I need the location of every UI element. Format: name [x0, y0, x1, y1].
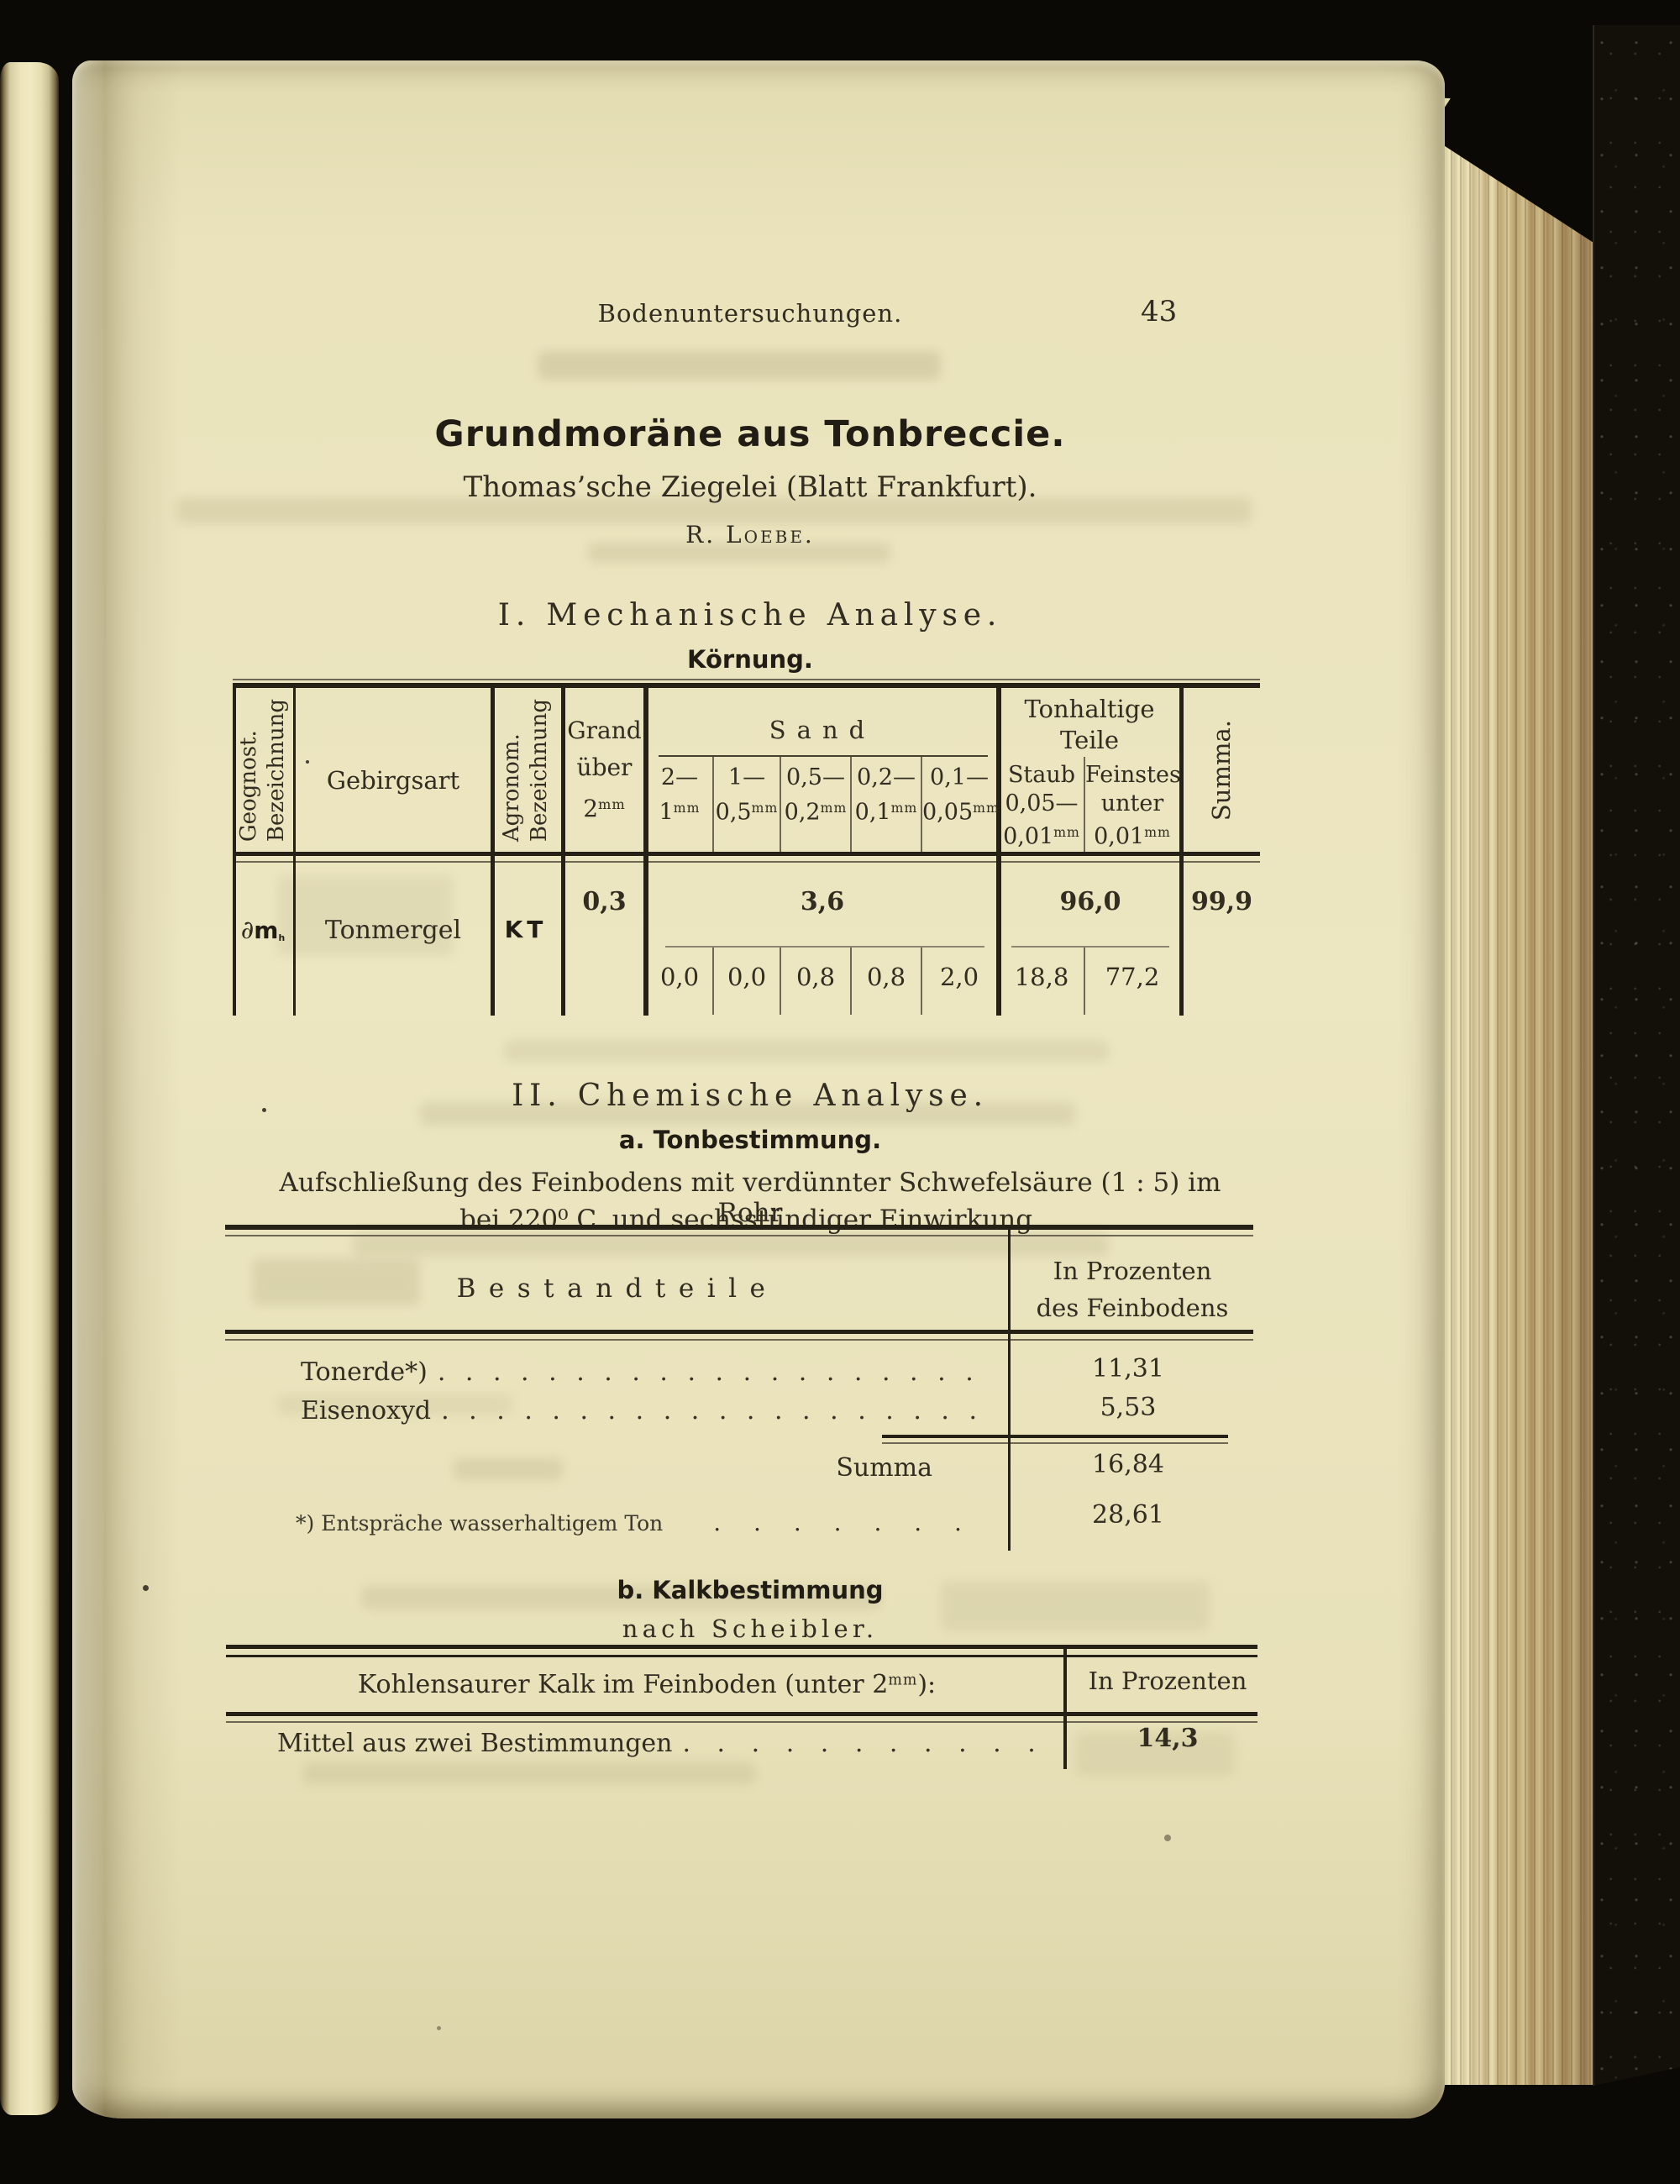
chem-row-tonerde-value: 11,31 [1011, 1354, 1246, 1383]
sand-range-bottom: 0,5mm [714, 793, 780, 828]
bleedthrough-ghost [538, 351, 941, 380]
table2-header-rule [225, 1330, 1253, 1334]
kalk-header-right: In Prozenten [1067, 1667, 1268, 1695]
geognost-symbol: ∂mh [234, 916, 291, 945]
agronom-line1: Agronom. [498, 699, 526, 842]
facing-page-edge [0, 62, 59, 2115]
table1-vline [293, 688, 296, 1016]
page-title: Grundmoräne aus Tonbreccie. [246, 413, 1254, 455]
sand-subcol-1: 2— 1mm [647, 763, 712, 828]
sand-range-unit: mm [821, 800, 848, 816]
column-header-geognost: Geognost. Bezeichnung [234, 690, 291, 850]
bleedthrough-ghost [454, 1458, 563, 1480]
value-sand-1: 0,0 [647, 963, 712, 991]
sand-range-bottom: 0,1mm [852, 793, 921, 828]
page-subtitle: Thomas’sche Ziegelei (Blatt Frankfurt). [246, 470, 1254, 504]
table2-summa-rule [882, 1435, 1228, 1438]
table1-top-rule-thin [233, 679, 1260, 680]
sand-range-value: 0,5 [716, 800, 752, 826]
value-sand-total: 3,6 [648, 887, 996, 916]
sand-range-top: 0,2— [852, 763, 921, 793]
value-ton-total: 96,0 [1001, 887, 1179, 916]
chem-header-left: Bestandteile [227, 1273, 1008, 1304]
bleedthrough-ghost [353, 1233, 1109, 1257]
sand-subcol-5: 0,1— 0,05mm [922, 763, 996, 828]
sand-range-top: 0,5— [781, 763, 850, 793]
sand-range-unit: mm [674, 800, 701, 816]
feinstes-unit: mm [1144, 824, 1171, 840]
table3-header-rule-thin [226, 1721, 1257, 1723]
geo-symbol-d: ∂ [241, 916, 255, 945]
section-1-subheading: Körnung. [246, 645, 1254, 674]
value-agronom: KT [492, 916, 559, 943]
chem-row-tonerde: Tonerde*) . . . . . . . . . . . . . . . … [301, 1357, 981, 1387]
dot-leader: . . . . . . . . . . . . . . . . . . . . … [431, 1396, 981, 1425]
table3-top-rule [226, 1645, 1257, 1649]
chem-header-right-line2: des Feinbodens [1011, 1294, 1254, 1322]
sand-range-top: 2— [647, 763, 712, 793]
chem-row-eisenoxyd: Eisenoxyd . . . . . . . . . . . . . . . … [301, 1396, 981, 1425]
sand-range-value: 0,2 [785, 800, 821, 826]
feinstes-line1: Feinstes [1085, 761, 1179, 790]
sand-underline [659, 755, 988, 757]
geo-symbol-sub: h [278, 932, 285, 943]
grand-unit: mm [598, 796, 626, 812]
sand-subcol-3: 0,5— 0,2mm [781, 763, 850, 828]
page-stack-seams [1441, 91, 1599, 2085]
feinstes-line3: 0,01mm [1085, 818, 1179, 852]
column-header-staub: Staub 0,05— 0,01mm [1000, 761, 1084, 852]
chem-row-eisenoxyd-value: 5,53 [1011, 1393, 1246, 1422]
geognost-line1: Geognost. [235, 699, 263, 842]
paper-speck [306, 760, 309, 764]
dot-leader: . . . . . . . . . . . . . . . . . . . . … [428, 1357, 981, 1387]
value-sand-2: 0,0 [714, 963, 780, 991]
kalk-header-left: Kohlensaurer Kalk im Feinboden (unter 2m… [252, 1670, 1042, 1699]
staub-line1: Staub [1000, 761, 1084, 790]
table3-top-rule-2 [226, 1655, 1257, 1657]
sand-subcol-4: 0,2— 0,1mm [852, 763, 921, 828]
sand-range-bottom: 0,2mm [781, 793, 850, 828]
dot-leader: . . . . . . . . . . . . . [663, 1509, 981, 1536]
staub-line2: 0,05— [1000, 790, 1084, 818]
value-summa: 99,9 [1184, 887, 1260, 916]
table2-top-rule [225, 1225, 1253, 1230]
sand-range-unit: mm [973, 800, 1000, 816]
running-header: Bodenuntersuchungen. [246, 299, 1254, 328]
feinstes-line2: unter [1085, 790, 1179, 818]
section-2b-subheading: b. Kalkbestimmung [246, 1576, 1254, 1604]
column-group-tonhaltige: Tonhaltige Teile [1000, 694, 1179, 756]
value-grand: 0,3 [565, 887, 643, 916]
dot-leader: . . . . . . . . . . . . . [672, 1729, 1037, 1758]
chem-summa-value: 16,84 [1011, 1450, 1246, 1479]
section-2a-subheading: a. Tonbestimmung. [246, 1126, 1254, 1154]
sand-range-bottom: 1mm [647, 793, 712, 828]
sand-range-unit: mm [891, 800, 918, 816]
table2-header-rule-thin [225, 1339, 1253, 1341]
paper-speck [437, 2026, 441, 2030]
chem-row-label: Eisenoxyd [301, 1396, 431, 1425]
chem-row-label: Tonerde*) [301, 1357, 428, 1387]
chem-footnote-value: 28,61 [1011, 1500, 1246, 1530]
sand-range-value: 0,1 [855, 800, 891, 826]
summa-label: Summa. [1208, 720, 1236, 821]
kalk-row: Mittel aus zwei Bestimmungen . . . . . .… [277, 1729, 1037, 1758]
column-header-summa: Summa. [1184, 690, 1260, 850]
value-sand-3: 0,8 [781, 963, 850, 991]
kalk-header-text: Kohlensaurer Kalk im Feinboden (unter 2 [358, 1670, 888, 1699]
value-sand-5: 2,0 [922, 963, 996, 991]
sand-range-value: 1 [659, 800, 674, 826]
sand-range-unit: mm [752, 800, 779, 816]
value-staub: 18,8 [1000, 963, 1084, 991]
column-header-feinstes: Feinstes unter 0,01mm [1085, 761, 1179, 852]
tonhaltige-line1: Tonhaltige [1000, 694, 1179, 725]
kalk-row-value: 14,3 [1067, 1724, 1268, 1753]
method-name: nach Scheibler. [246, 1614, 1254, 1643]
value-feinstes: 77,2 [1085, 963, 1179, 991]
staub-size: 0,01 [1003, 824, 1053, 850]
grand-size: 2 [583, 795, 598, 822]
geo-symbol-m: m [254, 916, 278, 944]
column-header-gebirgsart: Gebirgsart [296, 766, 491, 795]
value-gebirgsart: Tonmergel [296, 916, 491, 945]
chem-footnote-row: *) Entspräche wasserhaltigem Ton . . . .… [296, 1509, 981, 1536]
bleedthrough-ghost [504, 1040, 1109, 1062]
agronom-line2: Bezeichnung [526, 699, 554, 842]
value-sand-4: 0,8 [852, 963, 921, 991]
author: R. Loebe. [246, 521, 1254, 549]
method-description-line2: bei 220⁰ C. und sechsstündiger Einwirkun… [246, 1205, 1254, 1235]
page-gutter-shadow [72, 60, 181, 2118]
grand-line1: Grand [565, 712, 643, 749]
sand-range-top: 1— [714, 763, 780, 793]
column-header-agronom: Agronom. Bezeichnung [492, 690, 559, 850]
kalk-row-label: Mittel aus zwei Bestimmungen [277, 1729, 672, 1758]
bleedthrough-ghost [302, 1762, 756, 1784]
kalk-header-colon: ): [917, 1670, 936, 1699]
section-1-heading: I. Mechanische Analyse. [246, 598, 1254, 633]
tonhaltige-line2: Teile [1000, 725, 1179, 756]
table2-top-rule-thin [225, 1235, 1253, 1236]
table1-top-rule [233, 683, 1260, 688]
column-group-sand: Sand [648, 716, 996, 744]
geognost-line2: Bezeichnung [263, 699, 291, 842]
book-cover-spine-edge [1593, 25, 1680, 2173]
paper-speck [143, 1585, 149, 1591]
table1-header-rule-thin [233, 861, 1260, 863]
chem-header-right-line1: In Prozenten [1011, 1257, 1254, 1285]
table2-summa-rule-thin [882, 1442, 1228, 1444]
chem-summa-label: Summa [706, 1453, 966, 1483]
staub-unit: mm [1053, 824, 1080, 840]
table1-header-rule [233, 852, 1260, 856]
column-header-grand: Grand über 2mm [565, 712, 643, 827]
staub-line3: 0,01mm [1000, 818, 1084, 852]
sand-range-top: 0,1— [922, 763, 996, 793]
kalk-header-unit: mm [888, 1672, 917, 1688]
sand-subcol-2: 1— 0,5mm [714, 763, 780, 828]
section-2-heading: II. Chemische Analyse. [246, 1079, 1254, 1113]
grand-line2: über [565, 749, 643, 786]
feinstes-size: 0,01 [1094, 824, 1144, 850]
table3-header-rule [226, 1712, 1257, 1716]
sand-range-value: 0,05 [922, 800, 973, 826]
chem-footnote-label: *) Entspräche wasserhaltigem Ton [296, 1511, 663, 1536]
paper-speck [1164, 1835, 1171, 1841]
page-number: 43 [1141, 295, 1177, 328]
ton-split-rule [1011, 946, 1169, 948]
grand-line3: 2mm [565, 786, 643, 827]
sand-range-bottom: 0,05mm [922, 793, 996, 828]
